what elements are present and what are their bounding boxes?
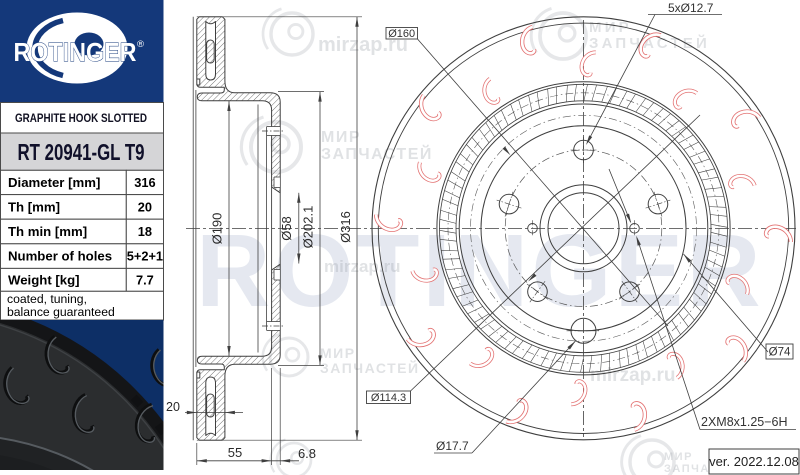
svg-text:mirzap.ru: mirzap.ru <box>324 257 401 276</box>
svg-text:Th [mm]: Th [mm] <box>8 199 60 214</box>
svg-text:Ø190: Ø190 <box>210 213 225 245</box>
svg-text:ver. 2022.12.08: ver. 2022.12.08 <box>709 454 799 469</box>
svg-text:6.8: 6.8 <box>298 446 316 461</box>
svg-text:55: 55 <box>228 445 242 460</box>
svg-text:7.7: 7.7 <box>136 272 154 287</box>
svg-text:Ø17.7: Ø17.7 <box>436 439 469 453</box>
svg-text:Ø114.3: Ø114.3 <box>371 392 406 404</box>
svg-text:316: 316 <box>134 175 155 190</box>
svg-text:ЗАПЧАСТЕЙ: ЗАПЧАСТЕЙ <box>321 144 433 163</box>
svg-text:ЗАПЧАСТЕЙ: ЗАПЧАСТЕЙ <box>320 359 420 376</box>
svg-text:Th min [mm]: Th min [mm] <box>8 224 87 239</box>
svg-text:®: ® <box>137 39 144 50</box>
svg-text:МИР: МИР <box>321 129 361 146</box>
svg-text:20: 20 <box>166 400 180 414</box>
svg-text:ROTINGER: ROTINGER <box>14 37 137 67</box>
svg-text:mirzap.ru: mirzap.ru <box>590 365 676 386</box>
svg-text:balance guaranteed: balance guaranteed <box>7 305 115 319</box>
svg-text:Ø160: Ø160 <box>388 28 415 40</box>
svg-text:5xØ12.7: 5xØ12.7 <box>668 1 714 15</box>
svg-text:20: 20 <box>138 199 152 214</box>
svg-text:GRAPHITE HOOK SLOTTED: GRAPHITE HOOK SLOTTED <box>15 111 147 125</box>
svg-text:RT 20941-GL T9: RT 20941-GL T9 <box>18 139 145 165</box>
svg-text:5+2+1: 5+2+1 <box>127 249 163 264</box>
svg-text:Ø58: Ø58 <box>279 216 294 241</box>
svg-text:Diameter [mm]: Diameter [mm] <box>8 175 100 190</box>
svg-text:Weight [kg]: Weight [kg] <box>8 272 80 287</box>
svg-text:coated, tuning,: coated, tuning, <box>7 292 87 306</box>
svg-text:18: 18 <box>138 224 152 239</box>
svg-text:Ø316: Ø316 <box>338 211 353 243</box>
svg-text:Ø74: Ø74 <box>769 347 791 359</box>
svg-text:Ø202.1: Ø202.1 <box>301 206 316 249</box>
svg-text:МИР: МИР <box>664 451 693 463</box>
svg-text:МИР: МИР <box>320 345 356 361</box>
svg-text:2XM8x1.25−6H: 2XM8x1.25−6H <box>701 415 788 429</box>
svg-text:Number of holes: Number of holes <box>8 249 112 264</box>
